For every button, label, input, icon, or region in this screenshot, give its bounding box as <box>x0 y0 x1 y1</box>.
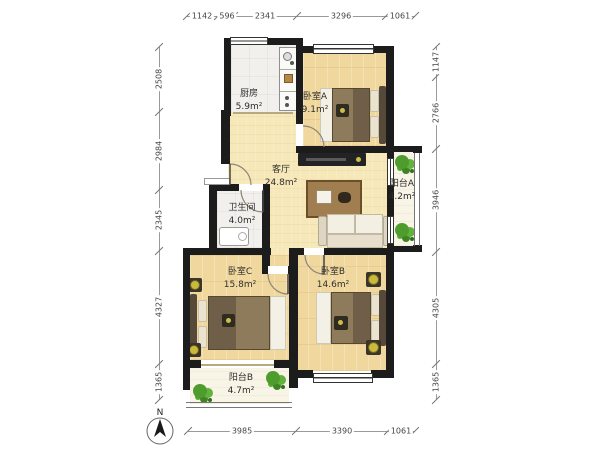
dimension-label: 1365 <box>432 370 441 394</box>
sofa-seat <box>327 214 355 234</box>
bed-sheet <box>270 296 286 350</box>
wall <box>296 370 313 378</box>
plant-icon <box>395 155 409 169</box>
cushion-dot <box>226 318 231 323</box>
room-area: 5.9m² <box>219 101 279 114</box>
dimension-label: 1147 <box>432 50 441 74</box>
wall <box>262 184 270 274</box>
tv-lamp <box>356 157 361 162</box>
room-name: 厨房 <box>219 88 279 101</box>
plant-icon <box>193 384 207 398</box>
balcony-b-threshold <box>201 364 274 366</box>
room-label-living: 客厅 24.8m² <box>251 164 311 190</box>
sink-icon <box>283 52 292 61</box>
pillow <box>370 90 379 112</box>
dimension-label: 2508 <box>155 67 164 91</box>
room-area: 14.6m² <box>303 279 363 292</box>
wall <box>296 146 394 153</box>
wall <box>209 184 239 191</box>
cabinet-icon <box>284 74 293 83</box>
cushion-dot <box>338 320 343 325</box>
nightstand <box>188 278 202 292</box>
bedroom-b-window <box>313 373 373 383</box>
table-decor <box>338 192 351 203</box>
compass-icon: N <box>147 408 173 444</box>
living-balcony-window <box>387 216 394 244</box>
door-opening <box>268 266 288 274</box>
washbasin-icon <box>238 232 247 241</box>
nightstand-lamp <box>368 274 379 285</box>
dimension-line-bottom <box>188 431 415 432</box>
room-label-bedroom-b: 卧室B 14.6m² <box>303 266 363 292</box>
room-label-balcony-a: 阳台A 4.2m² <box>382 178 422 204</box>
nightstand <box>366 272 381 287</box>
dimension-label: 2766 <box>432 101 441 125</box>
room-name: 客厅 <box>251 164 311 177</box>
room-area: 4.2m² <box>382 191 422 204</box>
bed-sheet <box>316 292 331 344</box>
wall <box>373 46 393 53</box>
room-label-kitchen: 厨房 5.9m² <box>219 88 279 114</box>
bed-cushion <box>334 316 348 330</box>
wall <box>386 46 394 152</box>
door-opening <box>296 124 303 146</box>
wall <box>183 248 271 255</box>
headboard <box>379 290 386 346</box>
dimension-label: 3390 <box>330 427 354 436</box>
wall <box>386 248 394 378</box>
dimension-label: 3946 <box>432 188 441 212</box>
sofa-seat <box>355 214 383 234</box>
bed-b <box>316 288 386 348</box>
coffee-table <box>306 180 362 218</box>
faucet-icon <box>290 61 294 65</box>
dimension-label: 3985 <box>230 427 254 436</box>
dimension-label: 4327 <box>155 295 164 319</box>
dimension-label: 2345 <box>155 208 164 232</box>
kitchen-window <box>230 37 268 45</box>
wall <box>413 146 422 153</box>
wall <box>274 360 296 368</box>
bed-c <box>190 294 286 352</box>
dimension-label: 2341 <box>253 12 277 21</box>
balcony-b-railing <box>186 402 292 408</box>
dimension-label: 2984 <box>155 139 164 163</box>
room-area: 4.0m² <box>212 215 272 228</box>
nightstand <box>366 340 381 355</box>
wall <box>296 248 304 255</box>
room-name: 卫生间 <box>212 202 272 215</box>
room-label-balcony-b: 阳台B 4.7m² <box>211 372 271 398</box>
room-name: 卧室C <box>210 266 270 279</box>
dimension-label: 596 <box>217 12 236 21</box>
dimension-label: 1061 <box>389 427 413 436</box>
wall <box>413 245 422 252</box>
dimension-label: 3296 <box>329 12 353 21</box>
room-area: 15.8m² <box>210 279 270 292</box>
nightstand-lamp <box>189 345 199 355</box>
table-tray <box>316 190 332 204</box>
room-area: 4.7m² <box>211 385 271 398</box>
nightstand-lamp <box>368 342 379 353</box>
bathroom-fixture <box>219 227 249 246</box>
room-name: 阳台B <box>211 372 271 385</box>
sofa-back <box>327 234 383 248</box>
sofa <box>318 214 392 250</box>
dimension-label: 1061 <box>388 12 412 21</box>
compass-north-label: N <box>157 408 164 418</box>
floor-plan: N 厨房 5.9m² 卧室A 9.1m² 客厅 24.8m² 阳台A 4.2m²… <box>0 0 600 450</box>
bed-cushion <box>222 314 235 327</box>
sofa-arm-left <box>318 216 327 246</box>
wall <box>221 110 230 164</box>
dimension-label: 1365 <box>155 370 164 394</box>
plant-icon <box>395 223 409 237</box>
room-label-bedroom-a: 卧室A 9.1m² <box>285 91 345 117</box>
room-area: 24.8m² <box>251 177 311 190</box>
room-name: 卧室B <box>303 266 363 279</box>
pillow <box>370 116 379 138</box>
wall <box>183 248 190 372</box>
headboard <box>379 86 386 144</box>
pillow <box>198 300 207 322</box>
tv-screen <box>306 158 346 161</box>
room-label-bathroom: 卫生间 4.0m² <box>212 202 272 228</box>
room-label-bedroom-c: 卧室C 15.8m² <box>210 266 270 292</box>
wall <box>183 360 190 390</box>
room-name: 卧室A <box>285 91 345 104</box>
dimension-label: 1142 <box>190 12 214 21</box>
entry-step <box>204 178 230 185</box>
door-opening <box>304 248 324 255</box>
room-name: 阳台A <box>382 178 422 191</box>
nightstand-lamp <box>190 280 200 290</box>
wall <box>324 248 393 255</box>
bed-blanket <box>208 296 270 350</box>
room-area: 9.1m² <box>285 104 345 117</box>
bedroom-a-window <box>313 44 374 54</box>
dimension-label: 4305 <box>432 296 441 320</box>
wall <box>296 38 303 84</box>
